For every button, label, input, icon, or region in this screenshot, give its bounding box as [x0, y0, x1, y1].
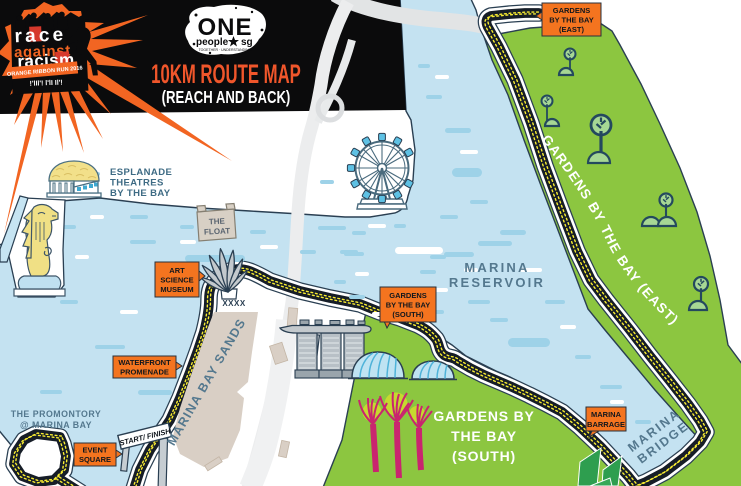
- svg-text:TOGETHER · UNDERSTANDING: TOGETHER · UNDERSTANDING: [199, 48, 252, 52]
- svg-text:FLOAT: FLOAT: [204, 226, 231, 236]
- svg-text:THE BAY: THE BAY: [451, 428, 517, 444]
- svg-text:(SOUTH): (SOUTH): [452, 448, 516, 464]
- svg-text:MUSEUM: MUSEUM: [160, 285, 193, 294]
- svg-text:(EAST): (EAST): [559, 25, 585, 34]
- svg-text:THE: THE: [209, 217, 226, 227]
- svg-text:BY THE BAY: BY THE BAY: [110, 188, 171, 199]
- svg-text:SQUARE: SQUARE: [79, 455, 111, 464]
- svg-text:RESERVOIR: RESERVOIR: [449, 275, 545, 290]
- svg-text:GARDENS: GARDENS: [553, 6, 591, 15]
- svg-text:(REACH AND BACK): (REACH AND BACK): [162, 88, 291, 107]
- svg-text:BY THE BAY: BY THE BAY: [386, 301, 431, 310]
- svg-text:WATERFRONT: WATERFRONT: [118, 358, 171, 367]
- svg-text:(SOUTH): (SOUTH): [392, 310, 424, 319]
- svg-text:GARDENS: GARDENS: [389, 291, 427, 300]
- svg-text:people: people: [196, 37, 229, 48]
- svg-text:MARINA: MARINA: [464, 260, 529, 275]
- svg-text:@ MARINA BAY: @ MARINA BAY: [20, 420, 92, 430]
- svg-text:10KM ROUTE MAP: 10KM ROUTE MAP: [151, 59, 301, 89]
- svg-text:BARRAGE: BARRAGE: [587, 420, 625, 429]
- svg-text:ESPLANADE: ESPLANADE: [110, 167, 172, 178]
- svg-text:sg: sg: [241, 37, 253, 48]
- svg-text:THEATRES: THEATRES: [110, 178, 164, 189]
- svg-text:EVENT: EVENT: [82, 446, 107, 455]
- svg-text:GARDENS BY: GARDENS BY: [433, 408, 534, 424]
- svg-text:XXXX: XXXX: [222, 299, 246, 308]
- svg-text:MARINA: MARINA: [591, 410, 622, 419]
- svg-text:SCIENCE: SCIENCE: [160, 276, 193, 285]
- svg-text:PROMENADE: PROMENADE: [120, 368, 169, 377]
- svg-text:BY THE BAY: BY THE BAY: [549, 16, 594, 25]
- svg-text:THE PROMONTORY: THE PROMONTORY: [11, 409, 102, 419]
- svg-text:!'lIl'! l'lI Il'!: !'lIl'! l'lI Il'!: [30, 80, 63, 88]
- svg-text:ART: ART: [169, 266, 185, 275]
